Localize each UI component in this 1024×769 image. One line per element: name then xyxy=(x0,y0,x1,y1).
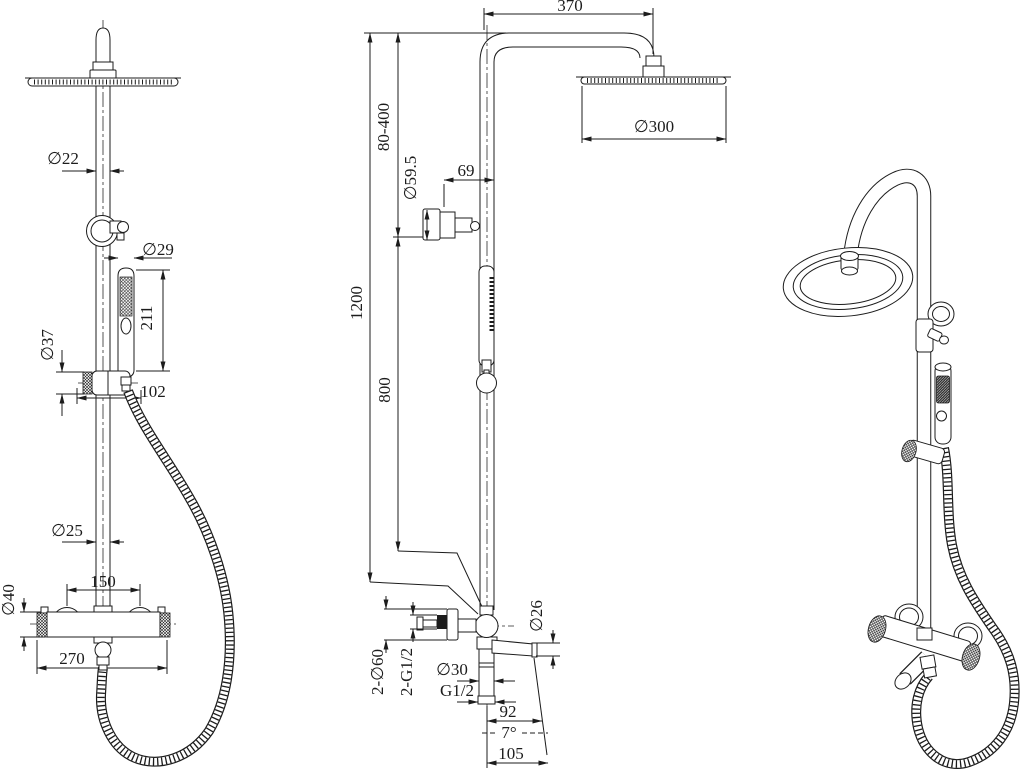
handset-outlet xyxy=(121,377,131,391)
dim-label: 370 xyxy=(557,0,583,15)
mixer-valve xyxy=(37,606,170,643)
dim-label: 2-G1/2 xyxy=(397,648,416,696)
dim-label: 105 xyxy=(498,744,524,763)
dim-label: ∅22 xyxy=(47,149,79,168)
spray-face xyxy=(120,277,132,316)
shower-system-drawing: ∅22 ∅29 211 xyxy=(0,0,1024,769)
valve-body xyxy=(47,612,160,637)
technical-drawing-page: ∅22 ∅29 211 xyxy=(0,0,1024,769)
dim-label: 102 xyxy=(140,382,166,401)
dim-label: ∅26 xyxy=(527,600,546,632)
dim-label: G1/2 xyxy=(440,681,474,700)
dim-label: ∅59.5 xyxy=(401,156,420,201)
hand-shower xyxy=(118,268,134,377)
dim-label: 150 xyxy=(90,572,116,591)
valve-knob xyxy=(160,613,170,637)
head-connector xyxy=(643,56,664,77)
handset-button xyxy=(937,411,947,421)
dim-label: ∅25 xyxy=(51,521,83,540)
slider-knob xyxy=(83,372,92,394)
dim-label: 69 xyxy=(458,161,475,180)
dim-label: ∅37 xyxy=(38,329,57,361)
dim-label: 270 xyxy=(59,649,85,668)
shower-head xyxy=(25,78,181,86)
handset-grip xyxy=(937,376,950,403)
dim-label: 7° xyxy=(501,723,516,742)
dim-label: ∅40 xyxy=(0,584,18,616)
dim-label: ∅300 xyxy=(634,117,674,136)
valve-handle xyxy=(437,615,447,629)
hand-shower xyxy=(935,363,951,444)
slider-ball xyxy=(477,373,497,393)
dim-label: 92 xyxy=(500,702,517,721)
dim-label: 1200 xyxy=(347,286,366,320)
dim-label: ∅30 xyxy=(436,660,468,679)
shower-head xyxy=(576,77,731,84)
dim-label: 211 xyxy=(137,306,156,331)
valve-ball xyxy=(475,615,498,638)
dim-label: 2-∅60 xyxy=(368,649,387,695)
head-connector xyxy=(841,252,859,276)
dim-label: 800 xyxy=(375,377,394,403)
handset-button xyxy=(121,318,131,334)
valve-knob xyxy=(37,613,47,637)
dim-label: 80-400 xyxy=(374,103,393,151)
dim-label: ∅29 xyxy=(142,240,174,259)
